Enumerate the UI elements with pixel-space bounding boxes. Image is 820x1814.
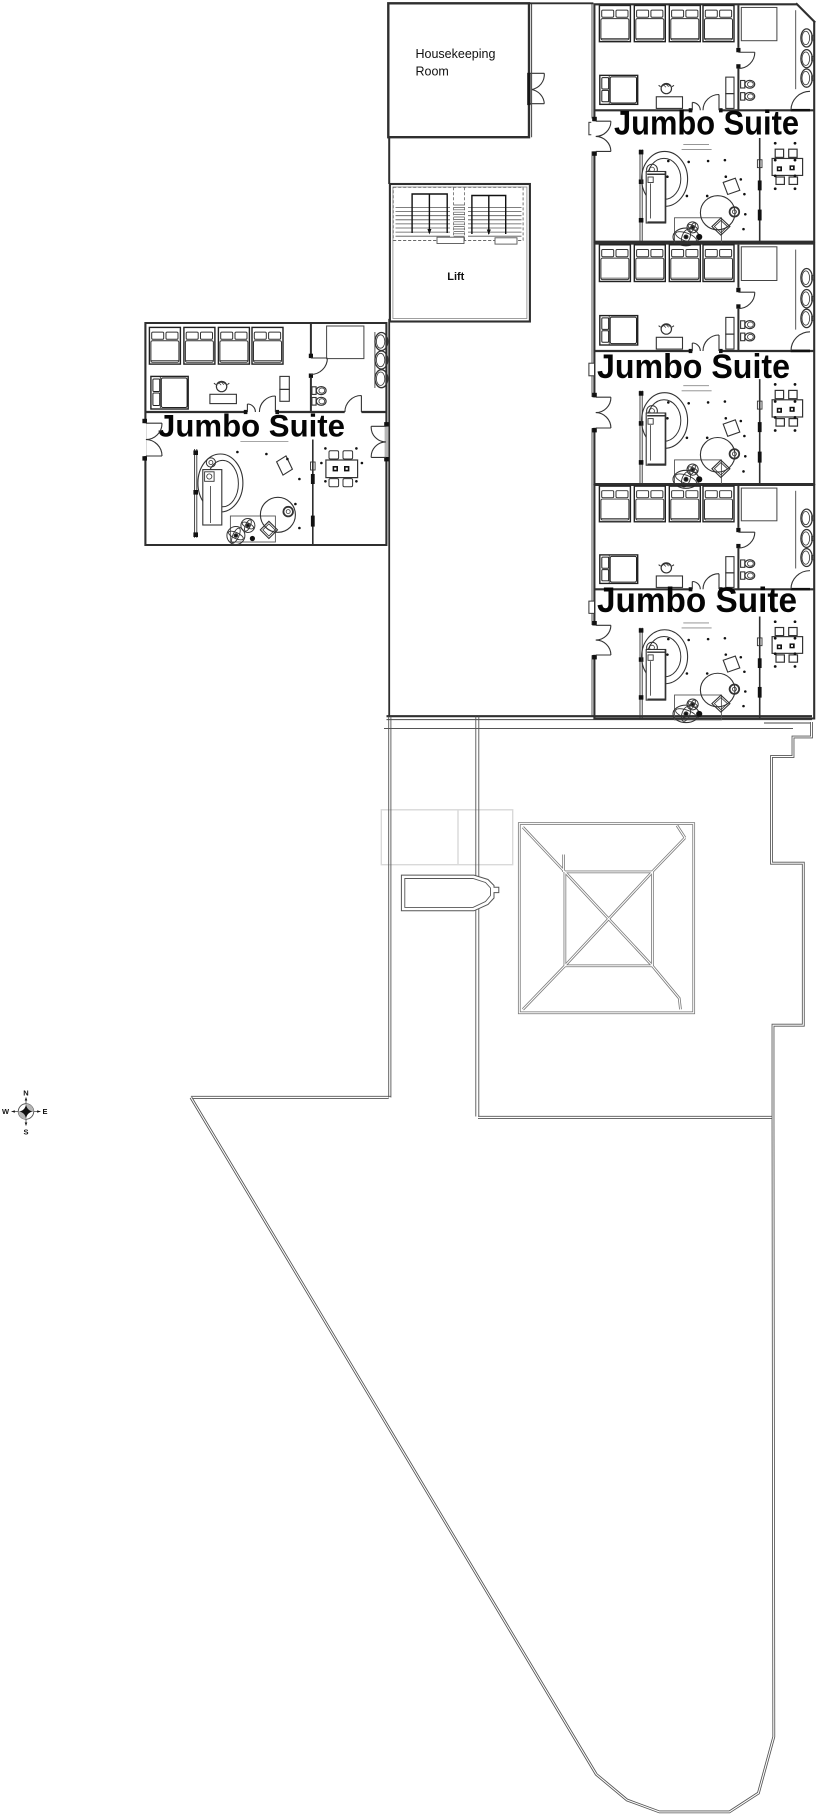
svg-text:Jumbo Suite: Jumbo Suite [614,105,799,143]
svg-text:Lift: Lift [447,271,464,283]
svg-text:Jumbo Suite: Jumbo Suite [158,408,345,444]
svg-text:Jumbo Suite: Jumbo Suite [597,580,797,620]
svg-text:W: W [2,1107,10,1116]
svg-text:S: S [23,1128,28,1137]
svg-text:E: E [42,1107,47,1116]
svg-text:N: N [23,1089,28,1098]
svg-text:Jumbo Suite: Jumbo Suite [597,348,790,386]
svg-text:Room: Room [416,65,449,79]
svg-text:Housekeeping: Housekeeping [416,47,496,61]
